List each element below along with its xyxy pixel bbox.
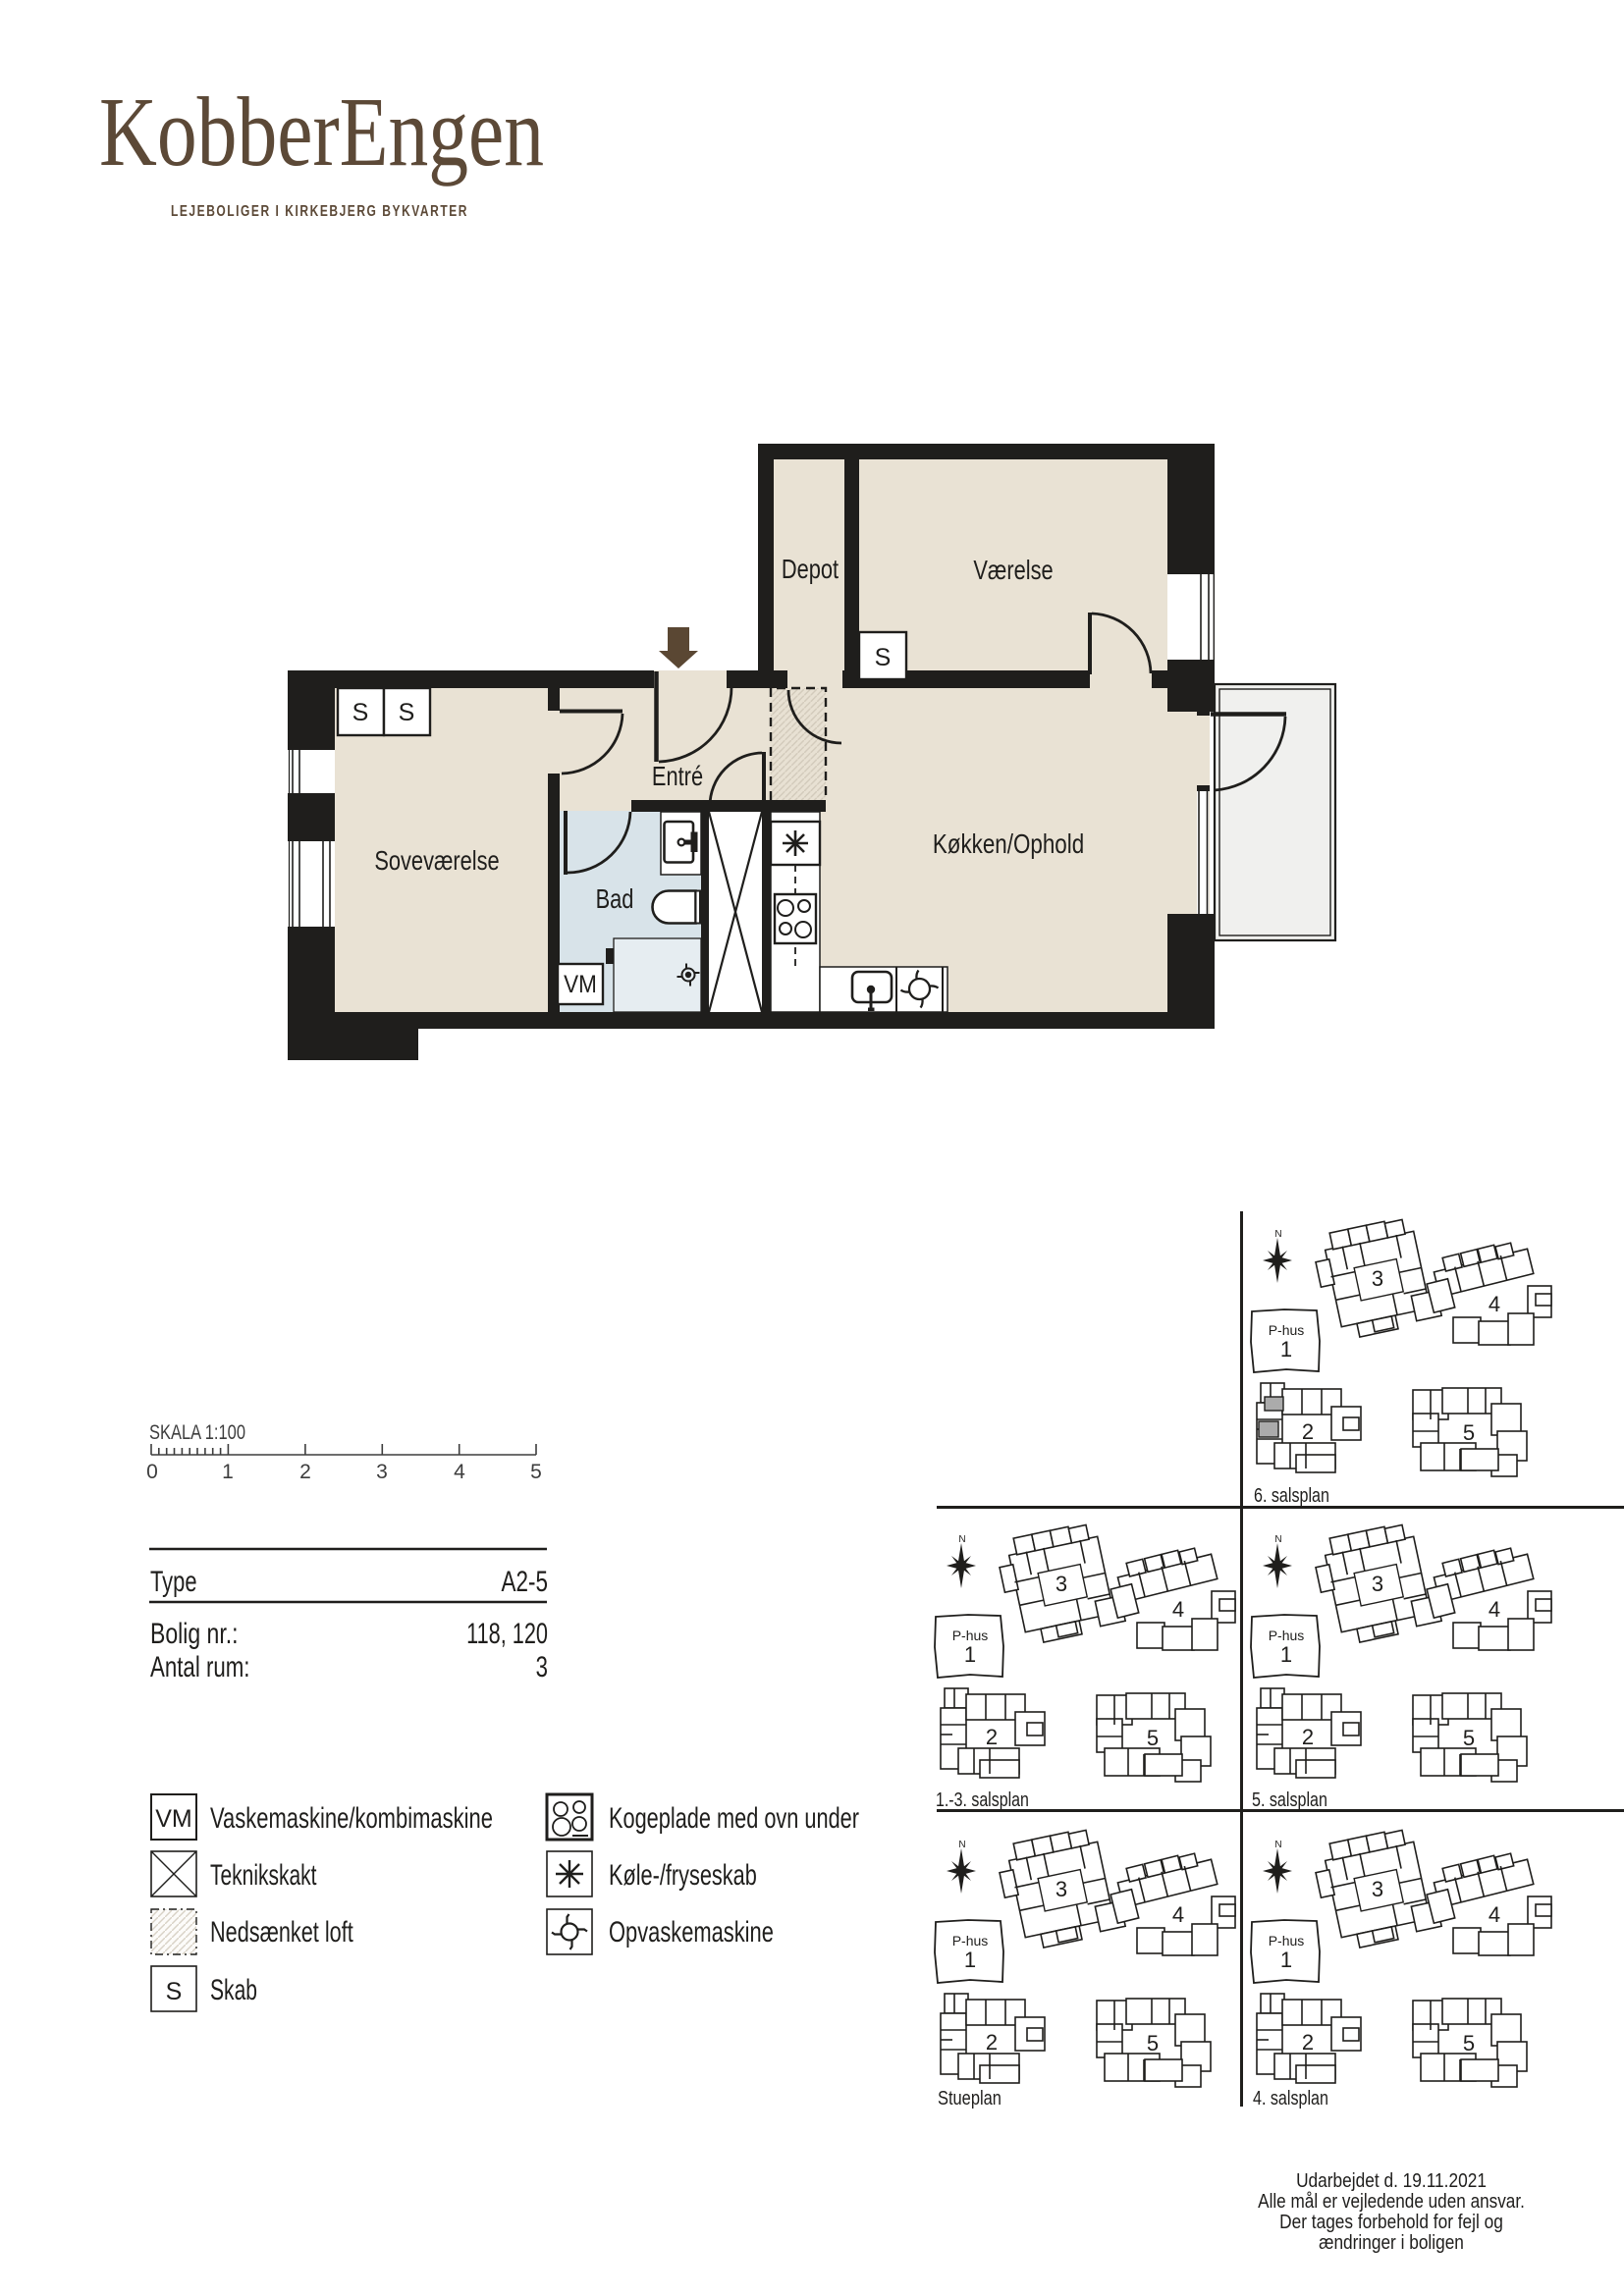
svg-text:S: S <box>352 699 369 726</box>
svg-text:Værelse: Værelse <box>973 555 1053 585</box>
svg-text:Nedsænket loft: Nedsænket loft <box>210 1914 353 1948</box>
svg-text:SKALA 1:100: SKALA 1:100 <box>149 1420 245 1443</box>
svg-text:Køkken/Ophold: Køkken/Ophold <box>933 829 1084 860</box>
svg-text:5: 5 <box>530 1461 542 1483</box>
svg-text:1: 1 <box>222 1461 234 1483</box>
svg-text:KobberEngen: KobberEngen <box>99 77 544 187</box>
svg-text:2: 2 <box>299 1461 311 1483</box>
svg-text:S: S <box>875 644 892 671</box>
svg-text:Der tages forbehold for fejl o: Der tages forbehold for fejl og <box>1279 2211 1503 2232</box>
svg-text:Alle mål er vejledende uden an: Alle mål er vejledende uden ansvar. <box>1258 2190 1525 2213</box>
svg-text:S: S <box>166 1978 183 2005</box>
svg-text:Vaskemaskine/kombimaskine: Vaskemaskine/kombimaskine <box>210 1801 493 1835</box>
svg-text:5. salsplan: 5. salsplan <box>1252 1789 1327 1810</box>
svg-text:ændringer i boligen: ændringer i boligen <box>1319 2231 1464 2253</box>
svg-text:118, 120: 118, 120 <box>466 1617 548 1650</box>
svg-text:S: S <box>399 699 415 726</box>
svg-text:Køle-/fryseskab: Køle-/fryseskab <box>609 1858 757 1892</box>
svg-text:Stueplan: Stueplan <box>938 2086 1001 2109</box>
svg-text:Depot: Depot <box>782 554 839 584</box>
svg-text:Entré: Entré <box>652 761 703 791</box>
svg-text:4. salsplan: 4. salsplan <box>1253 2087 1328 2109</box>
svg-text:Type: Type <box>150 1565 197 1598</box>
svg-text:LEJEBOLIGER I KIRKEBJERG BYKVA: LEJEBOLIGER I KIRKEBJERG BYKVARTER <box>171 203 468 220</box>
svg-text:A2-5: A2-5 <box>502 1565 548 1598</box>
svg-text:3: 3 <box>536 1650 548 1683</box>
svg-text:VM: VM <box>155 1805 192 1833</box>
svg-text:Udarbejdet d. 19.11.2021: Udarbejdet d. 19.11.2021 <box>1296 2169 1487 2191</box>
svg-text:Teknikskakt: Teknikskakt <box>210 1860 316 1892</box>
svg-text:Antal rum:: Antal rum: <box>150 1650 250 1683</box>
svg-text:1.-3. salsplan: 1.-3. salsplan <box>936 1789 1029 1810</box>
svg-text:4: 4 <box>454 1461 465 1483</box>
svg-text:Opvaskemaskine: Opvaskemaskine <box>609 1915 774 1949</box>
svg-text:VM: VM <box>564 971 597 998</box>
svg-text:Bolig nr.:: Bolig nr.: <box>150 1617 238 1650</box>
svg-text:3: 3 <box>376 1461 388 1483</box>
svg-text:Soveværelse: Soveværelse <box>374 845 499 876</box>
svg-text:Kogeplade med ovn under: Kogeplade med ovn under <box>609 1801 859 1835</box>
svg-text:Skab: Skab <box>210 1975 257 2006</box>
svg-text:Bad: Bad <box>596 883 634 914</box>
svg-text:0: 0 <box>146 1461 158 1483</box>
svg-text:6. salsplan: 6. salsplan <box>1254 1484 1329 1506</box>
